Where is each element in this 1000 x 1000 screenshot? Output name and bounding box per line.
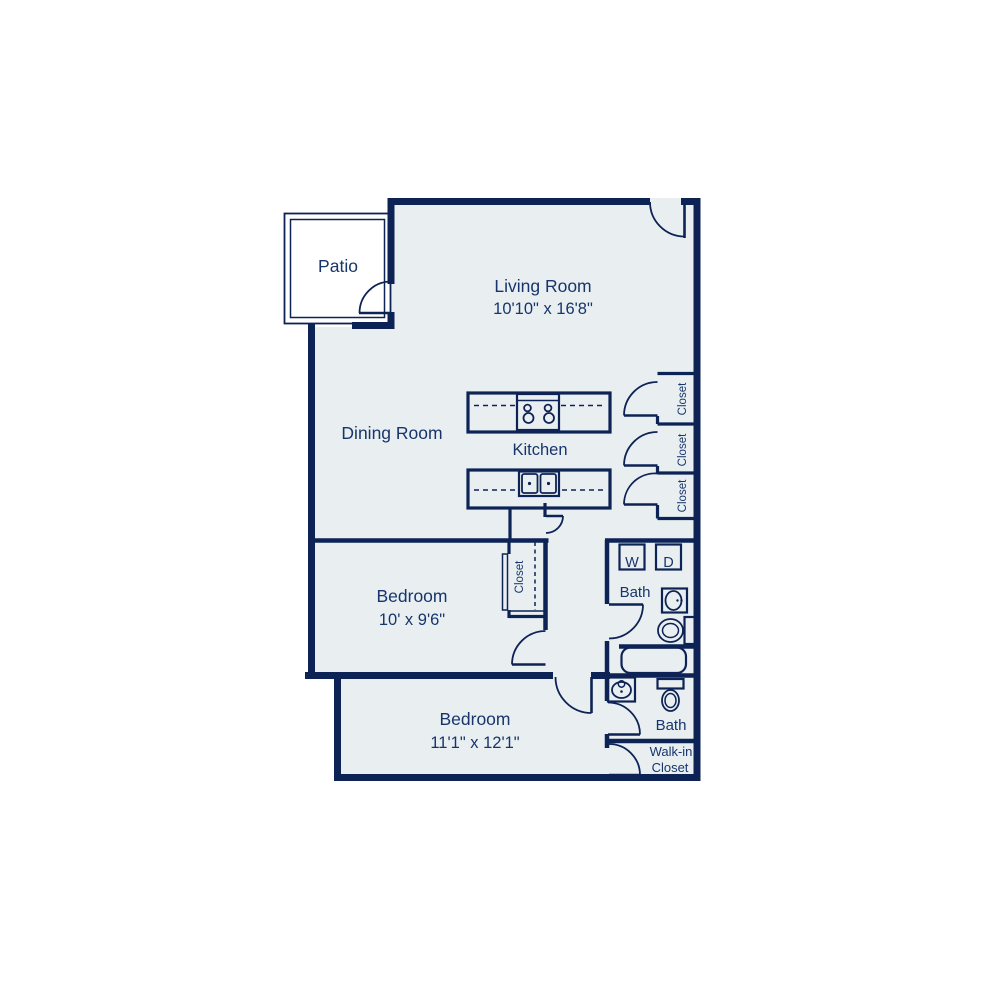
living-room-dimensions: 10'10" x 16'8" <box>493 300 593 318</box>
closet-bank-middle-label: Closet <box>677 433 689 466</box>
patio-label: Patio <box>318 256 358 276</box>
bedroom-1-dimensions: 10' x 9'6" <box>379 611 445 629</box>
kitchen-label: Kitchen <box>512 441 567 459</box>
bedroom-1-label: Bedroom <box>376 586 447 606</box>
dining-room-label: Dining Room <box>341 423 442 443</box>
dryer-label: D <box>663 555 673 571</box>
walk-in-closet-label-line2: Closet <box>652 760 689 775</box>
washer-label: W <box>625 555 639 571</box>
bedroom-1-closet-label: Closet <box>514 560 526 593</box>
bath-1-label: Bath <box>620 584 651 601</box>
closet-bank-bottom-label: Closet <box>677 479 689 512</box>
floor-plan-svg: W D Patio Livi <box>0 0 1000 1000</box>
bath-2-label: Bath <box>656 717 687 734</box>
living-room-label: Living Room <box>494 276 591 296</box>
walk-in-closet-label-line1: Walk-in <box>650 744 693 759</box>
bedroom-2-label: Bedroom <box>439 709 510 729</box>
bedroom-2-dimensions: 11'1" x 12'1" <box>430 734 519 752</box>
floor-plan-page: W D Patio Livi <box>0 0 1000 1000</box>
closet-bank-top-label: Closet <box>677 382 689 415</box>
